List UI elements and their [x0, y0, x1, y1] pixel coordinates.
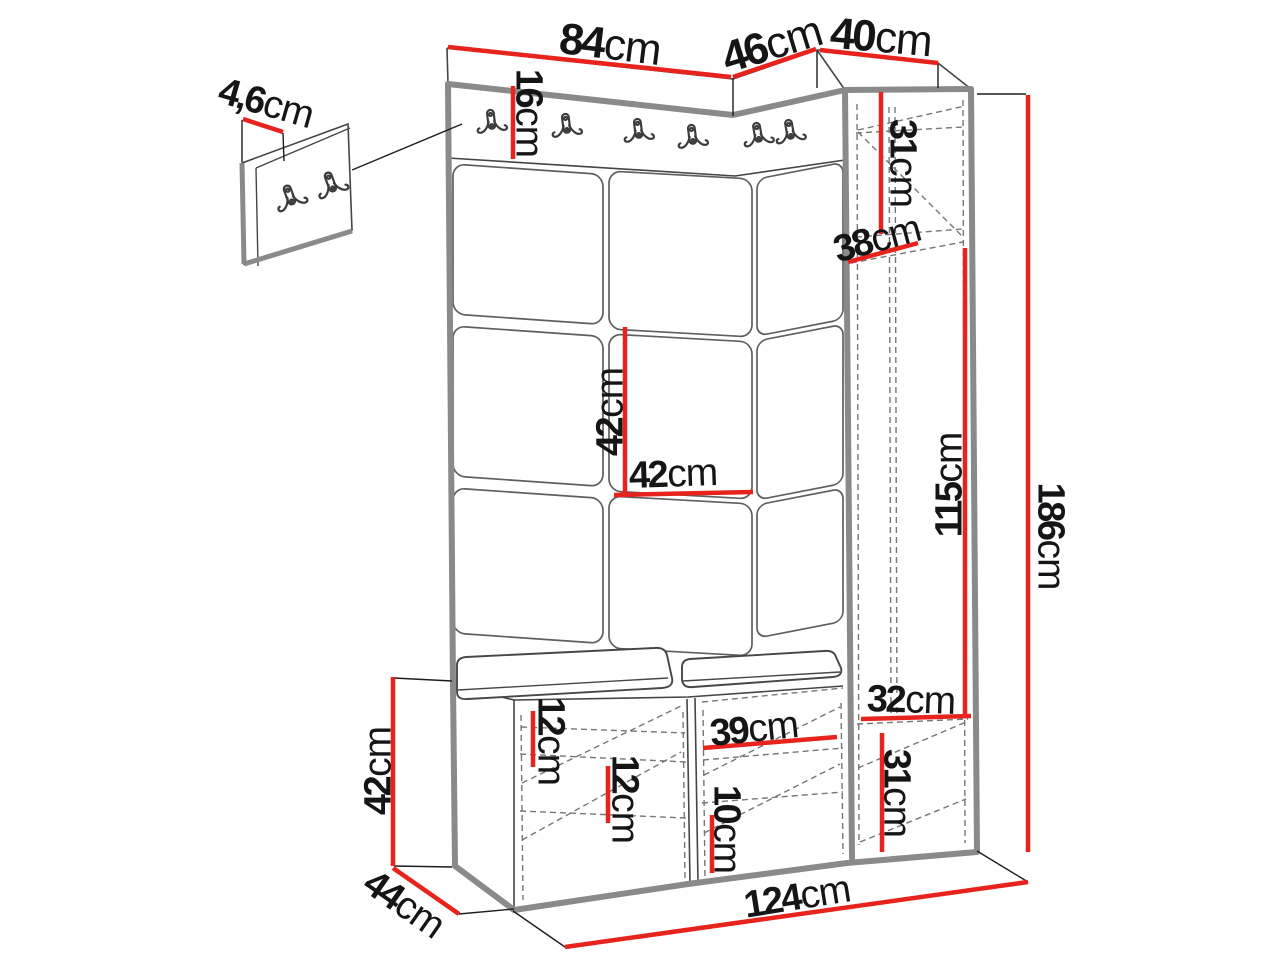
dim-number: 32 — [866, 678, 905, 721]
upholstered-panel — [757, 488, 843, 638]
dim-label-12cm-a: 12cm — [532, 697, 571, 785]
upholstered-panel — [453, 488, 603, 643]
dim-number: 42 — [590, 419, 632, 456]
dim-number: 31 — [876, 749, 918, 786]
dim-unit: cm — [1030, 538, 1073, 589]
dim-number: 12 — [604, 755, 646, 792]
dim-unit: cm — [745, 703, 800, 751]
dim-unit: cm — [872, 12, 934, 66]
dim-number: 42 — [628, 454, 667, 497]
dim-number: 84 — [557, 14, 607, 68]
dim-number: 124 — [741, 876, 803, 926]
dim-label-16cm: 16cm — [510, 69, 549, 157]
dim-unit: cm — [604, 792, 647, 843]
detail-leader-line — [352, 124, 462, 170]
upholstered-panel — [453, 164, 603, 324]
dim-number: 31 — [882, 119, 924, 156]
dim-label-40cm: 40cm — [828, 12, 933, 65]
dim-number: 42 — [358, 778, 400, 815]
dim-label-12cm-b: 12cm — [606, 755, 645, 843]
top-left-cap — [447, 48, 448, 84]
panel-column-left — [453, 164, 603, 643]
dim-unit: cm — [600, 19, 663, 75]
bench-left-face — [452, 685, 514, 909]
dim-unit: cm — [882, 156, 925, 207]
panel-edge-left-thick — [242, 163, 244, 264]
dim-unit: cm — [928, 433, 971, 484]
dim-unit: cm — [706, 822, 749, 873]
dim-number: 40 — [828, 9, 876, 62]
dim-number: 16 — [508, 69, 550, 106]
dim-label-115cm: 115cm — [930, 433, 969, 538]
dim-label-31cm-bottom: 31cm — [878, 749, 917, 837]
seat-cushion-right — [682, 651, 841, 687]
dim-label-42cm-vertical: 42cm — [591, 368, 630, 456]
dim-unit: cm — [876, 786, 919, 837]
dim-number: 10 — [706, 785, 748, 822]
dim-label-10cm: 10cm — [708, 785, 747, 873]
dim-unit: cm — [530, 734, 573, 785]
upholstered-panel-grid — [453, 162, 843, 656]
cabinet-top-edge — [845, 89, 971, 90]
dim-unit: cm — [357, 727, 400, 778]
dim-number: 12 — [530, 697, 572, 734]
dim-label-42cm-horizontal: 42cm — [628, 453, 718, 495]
furniture-dimension-diagram: 84cm 46cm 40cm 4,6cm 16cm 31cm 38cm 42cm… — [0, 0, 1280, 960]
dim-unit: cm — [903, 678, 955, 723]
small-hook-panel — [242, 124, 352, 266]
dim-label-186cm: 186cm — [1032, 483, 1071, 590]
upholstered-panel — [609, 496, 752, 656]
dim-unit: cm — [796, 867, 853, 917]
seat-cushion-left — [457, 648, 672, 699]
upholstered-panel — [609, 171, 752, 337]
upholstered-panel — [453, 326, 603, 486]
dim-label-32cm: 32cm — [866, 679, 956, 721]
dim-label-84cm: 84cm — [557, 17, 663, 73]
dim-label-42cm-bench: 42cm — [359, 727, 398, 815]
dim-unit: cm — [665, 451, 717, 496]
dim-number: 115 — [929, 484, 971, 538]
upholstered-panel — [757, 162, 843, 336]
dim-unit: cm — [508, 106, 551, 157]
dim-unit: cm — [589, 368, 632, 419]
dim-number: 186 — [1030, 483, 1072, 539]
upholstered-panel — [757, 324, 843, 500]
dim-label-31cm-top: 31cm — [884, 119, 923, 207]
dim-label-39cm: 39cm — [708, 705, 800, 753]
dim-number: 39 — [708, 709, 749, 755]
